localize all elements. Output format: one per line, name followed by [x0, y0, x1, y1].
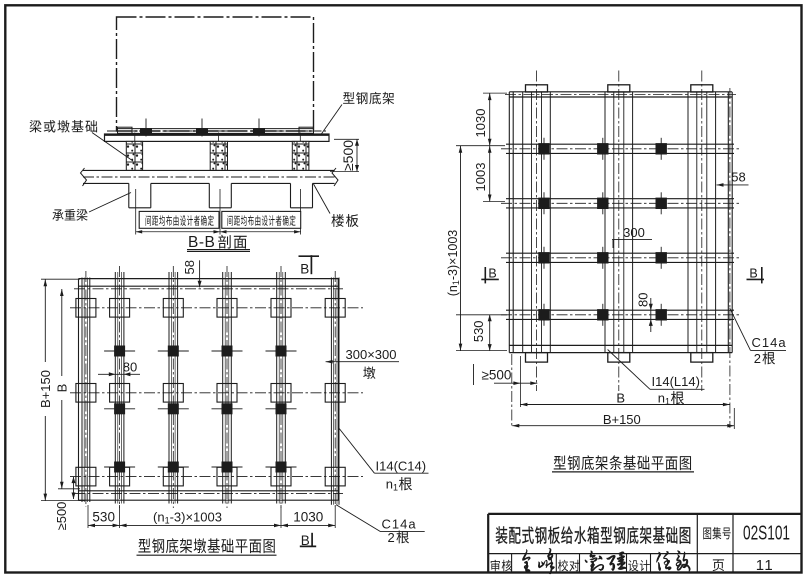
- svg-text:I14(L14): I14(L14): [652, 374, 700, 389]
- svg-text:C14a: C14a: [752, 335, 787, 350]
- svg-text:B: B: [300, 262, 309, 277]
- svg-text:58: 58: [182, 260, 197, 274]
- svg-text:≥500: ≥500: [54, 502, 69, 531]
- svg-text:B: B: [301, 533, 310, 548]
- svg-text:(n1-3)×1003: (n1-3)×1003: [153, 510, 222, 526]
- svg-text:B: B: [616, 391, 625, 406]
- svg-text:1030: 1030: [473, 109, 488, 138]
- svg-text:(n1-3)×1003: (n1-3)×1003: [446, 230, 461, 297]
- svg-text:300×300: 300×300: [346, 347, 397, 362]
- svg-text:B: B: [749, 266, 757, 280]
- svg-text:B: B: [54, 384, 69, 393]
- svg-text:300: 300: [623, 225, 645, 240]
- svg-text:1003: 1003: [473, 163, 488, 192]
- svg-text:I14(C14): I14(C14): [376, 459, 427, 474]
- svg-text:530: 530: [92, 510, 115, 525]
- svg-text:530: 530: [471, 320, 486, 342]
- svg-text:B-B: B-B: [188, 234, 215, 251]
- svg-text:B+150: B+150: [38, 370, 53, 408]
- svg-text:2: 2: [388, 530, 395, 545]
- svg-text:1030: 1030: [293, 510, 323, 525]
- svg-text:2: 2: [754, 351, 761, 366]
- svg-text:80: 80: [636, 293, 651, 307]
- svg-text:11: 11: [756, 557, 775, 574]
- svg-text:≥500: ≥500: [482, 368, 512, 383]
- svg-text:80: 80: [123, 360, 137, 375]
- svg-text:B+150: B+150: [603, 412, 641, 427]
- svg-text:02S101: 02S101: [743, 523, 790, 545]
- svg-text:58: 58: [731, 169, 745, 184]
- svg-text:≥500: ≥500: [340, 140, 356, 171]
- svg-text:B: B: [488, 266, 496, 280]
